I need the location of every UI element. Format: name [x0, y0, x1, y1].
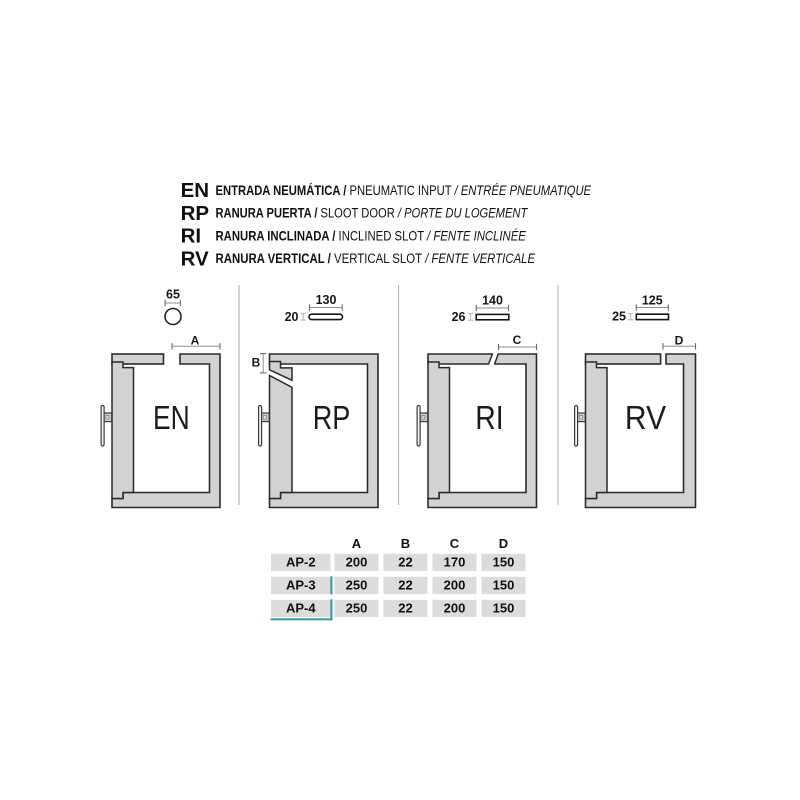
svg-text:22: 22	[398, 601, 412, 616]
svg-text:140: 140	[482, 293, 503, 307]
svg-text:200: 200	[444, 601, 466, 616]
svg-text:200: 200	[346, 555, 368, 570]
svg-text:RP: RP	[181, 202, 209, 225]
svg-text:150: 150	[493, 555, 515, 570]
svg-text:RANURA PUERTA / SLOOT DOOR / P: RANURA PUERTA / SLOOT DOOR / PORTE DU LO…	[216, 205, 529, 220]
svg-text:B: B	[252, 356, 261, 370]
svg-text:ENTRADA NEUMÁTICA / PNEUMATIC: ENTRADA NEUMÁTICA / PNEUMATIC INPUT / EN…	[216, 182, 592, 199]
svg-text:65: 65	[166, 288, 180, 302]
svg-text:EN: EN	[181, 179, 209, 202]
svg-text:RV: RV	[625, 399, 666, 437]
svg-text:22: 22	[398, 578, 412, 593]
svg-text:B: B	[401, 536, 410, 551]
svg-text:RV: RV	[181, 247, 209, 270]
svg-text:D: D	[499, 536, 508, 551]
svg-text:A: A	[191, 333, 200, 347]
svg-text:RI: RI	[181, 225, 202, 248]
svg-text:170: 170	[444, 555, 466, 570]
svg-text:RANURA VERTICAL / VERTICAL SLO: RANURA VERTICAL / VERTICAL SLOT / FENTE …	[216, 250, 536, 266]
svg-text:200: 200	[444, 578, 466, 593]
svg-text:C: C	[513, 333, 522, 347]
svg-text:RP: RP	[313, 401, 351, 437]
svg-text:250: 250	[346, 578, 368, 593]
svg-text:D: D	[675, 333, 684, 347]
svg-text:150: 150	[493, 578, 515, 593]
svg-text:C: C	[450, 536, 460, 551]
svg-text:22: 22	[398, 555, 412, 570]
svg-text:A: A	[352, 536, 362, 551]
svg-text:25: 25	[612, 310, 626, 324]
svg-text:RANURA INCLINADA / INCLINED SL: RANURA INCLINADA / INCLINED SLOT / FENTE…	[216, 227, 527, 243]
svg-text:RI: RI	[475, 399, 503, 437]
svg-text:AP-4: AP-4	[286, 601, 316, 616]
svg-text:20: 20	[285, 310, 299, 324]
svg-text:EN: EN	[153, 400, 190, 436]
svg-text:130: 130	[316, 293, 337, 307]
svg-text:AP-2: AP-2	[286, 555, 316, 570]
svg-text:26: 26	[452, 310, 466, 324]
svg-text:125: 125	[642, 293, 663, 307]
svg-text:AP-3: AP-3	[286, 578, 316, 593]
svg-text:250: 250	[346, 601, 368, 616]
svg-text:150: 150	[493, 601, 515, 616]
